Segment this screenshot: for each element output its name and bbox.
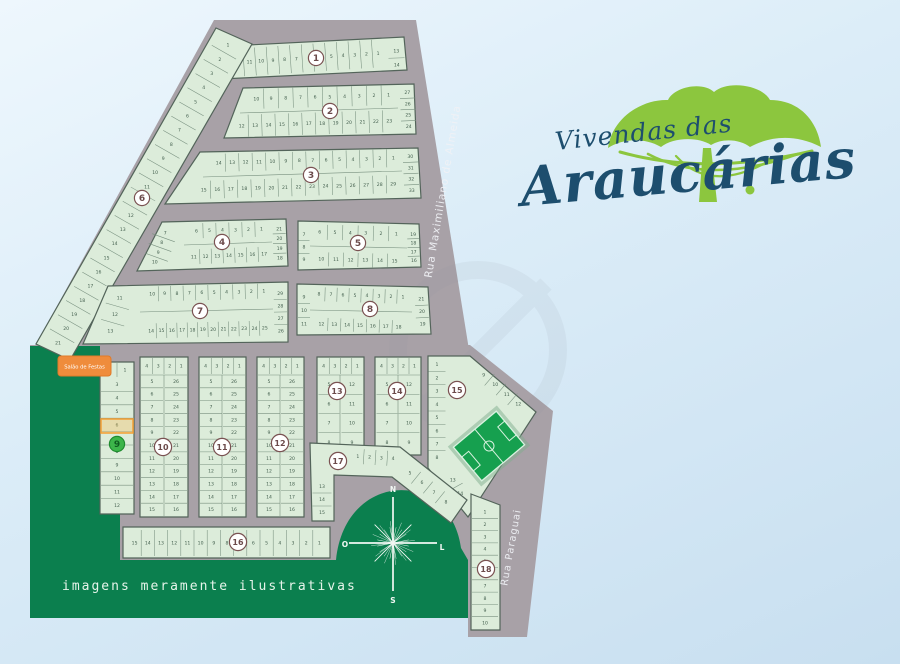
- lot-number: 11: [144, 184, 150, 190]
- block-4-number-badge: 4: [214, 234, 229, 249]
- lot-number: 7: [295, 56, 298, 62]
- block-11-badge-number: 11: [216, 443, 228, 452]
- lot-number: 10: [269, 159, 275, 165]
- compass-east-label: L: [440, 543, 445, 552]
- lot-number: 1: [226, 43, 229, 49]
- lot-number: 5: [213, 290, 216, 296]
- lot-number: 14: [226, 253, 232, 259]
- lot-number: 11: [149, 456, 155, 462]
- lot-number: 5: [194, 99, 197, 105]
- lot-number: 5: [338, 157, 341, 163]
- lot-number: 8: [151, 417, 154, 423]
- lot-number: 17: [289, 494, 295, 500]
- block-10: 4321567891011121314152625242322212019181…: [140, 357, 188, 517]
- lot-number: 13: [158, 541, 164, 547]
- lot-number: 9: [268, 430, 271, 436]
- lot-number: 3: [436, 389, 439, 395]
- lot-number: 2: [402, 364, 405, 370]
- lot-number: 9: [408, 440, 411, 446]
- lot-number: 4: [352, 157, 355, 163]
- lot-number: 19: [420, 321, 426, 327]
- lot-number: 21: [221, 327, 227, 333]
- lot-number: 7: [386, 421, 389, 427]
- lot-number: 20: [289, 456, 295, 462]
- lot-number: 10: [149, 291, 155, 297]
- lot-number: 21: [173, 443, 179, 449]
- lot-number: 16: [173, 507, 179, 513]
- lot-number: 1: [356, 454, 359, 460]
- block-12-number-badge: 12: [271, 434, 288, 451]
- lot-number: 29: [277, 291, 283, 297]
- lot-number: 5: [268, 379, 271, 385]
- block-16-number-badge: 16: [229, 533, 246, 550]
- lot-number: 25: [173, 392, 179, 398]
- lot-number: 5: [151, 379, 154, 385]
- block-13: 432156781211109: [317, 357, 364, 455]
- lot-number: 11: [184, 541, 190, 547]
- lot-number: 6: [151, 392, 154, 398]
- block-10-number-badge: 10: [154, 438, 171, 455]
- lot-number: 2: [380, 231, 383, 237]
- lot-number: 22: [296, 185, 302, 191]
- lot-number: 26: [278, 328, 284, 334]
- lot-number: 13: [331, 322, 337, 328]
- lot-number: 4: [225, 290, 228, 296]
- lot-number: 9: [163, 291, 166, 297]
- block-8-number-badge: 8: [362, 301, 377, 316]
- block-13-number-badge: 13: [328, 382, 345, 399]
- lot-number: 23: [241, 326, 247, 332]
- lot-number: 11: [191, 254, 197, 260]
- lot-number: 9: [482, 372, 485, 378]
- lot-number: 8: [226, 541, 229, 547]
- block-4-badge-number: 4: [219, 238, 225, 248]
- block-4: 654321789101112131415161721201918: [137, 219, 288, 271]
- lot-number: 9: [210, 430, 213, 436]
- lot-number: 16: [289, 507, 295, 513]
- lot-number: 1: [413, 364, 416, 370]
- lot-number: 27: [363, 183, 369, 189]
- lot-number: 2: [227, 364, 230, 370]
- block-6-badge-number: 6: [139, 194, 145, 204]
- lot-number: 12: [243, 160, 249, 166]
- lot-number: 17: [306, 121, 312, 127]
- lot-number: 14: [112, 241, 118, 247]
- lot-number: 16: [214, 187, 220, 193]
- lot-number: 24: [289, 405, 295, 411]
- lot-number: 9: [271, 58, 274, 64]
- lot-number: 7: [151, 405, 154, 411]
- block-16-badge-number: 16: [232, 538, 244, 547]
- lot-number: 3: [333, 364, 336, 370]
- lot-number: 9: [284, 159, 287, 165]
- lot-number: 6: [386, 401, 389, 407]
- lot-number: 24: [173, 405, 179, 411]
- lot-number: 14: [148, 328, 154, 334]
- lot-number: 6: [268, 392, 271, 398]
- block-11-number-badge: 11: [213, 438, 230, 455]
- lot-number: 11: [406, 401, 412, 407]
- lot-number: 16: [96, 270, 102, 276]
- lot-number: 4: [278, 541, 281, 547]
- lot-number: 17: [411, 249, 417, 255]
- lot-number: 5: [330, 54, 333, 60]
- lot-number: 18: [241, 186, 247, 192]
- lot-number: 27: [404, 90, 410, 96]
- lot-number: 7: [178, 128, 181, 134]
- lot-number: 16: [411, 258, 417, 264]
- lot-number: 16: [231, 507, 237, 513]
- lot-number: 18: [319, 121, 325, 127]
- lot-number: 3: [157, 364, 160, 370]
- lot-number: 14: [145, 541, 151, 547]
- lot-number: 5: [436, 415, 439, 421]
- lot-number: 2: [285, 364, 288, 370]
- lot-number: 24: [406, 124, 412, 130]
- lot-number: 12: [128, 213, 134, 219]
- lot-number: 1: [402, 294, 405, 300]
- lot-number: 9: [157, 250, 160, 256]
- block-2-number-badge: 2: [322, 103, 337, 118]
- lot-number: 2: [250, 289, 253, 295]
- lot-number: 17: [228, 187, 234, 193]
- lot-number: 19: [333, 120, 339, 126]
- lot-number: 7: [484, 583, 487, 589]
- block-3-outline: [165, 148, 421, 204]
- lot-number: 19: [289, 469, 295, 475]
- lot-number: 1: [484, 510, 487, 516]
- lot-number: 8: [176, 291, 179, 297]
- lot-number: 20: [173, 456, 179, 462]
- lot-number: 3: [391, 364, 394, 370]
- lot-number: 24: [323, 184, 329, 190]
- lot-number: 11: [266, 456, 272, 462]
- lot-number: 19: [255, 186, 261, 192]
- lot-number: 8: [445, 500, 448, 506]
- lot-number: 22: [289, 430, 295, 436]
- lot-number: 4: [366, 293, 369, 299]
- lot-number: 8: [284, 96, 287, 102]
- lot-number: 3: [353, 52, 356, 58]
- lot-number: 13: [319, 484, 325, 490]
- lot-number: 2: [436, 375, 439, 381]
- lot-number: 26: [350, 183, 356, 189]
- lot-number: 12: [406, 382, 412, 388]
- amenity-label-text: Salão de Festas: [64, 365, 105, 371]
- lot-number: 15: [238, 253, 244, 259]
- lot-number: 4: [221, 228, 224, 234]
- lot-number: 9: [162, 156, 165, 162]
- lot-number: 13: [393, 49, 399, 55]
- lot-number: 18: [289, 481, 295, 487]
- lot-number: 4: [204, 364, 207, 370]
- lot-number: 26: [405, 101, 411, 107]
- lot-number: 28: [277, 303, 283, 309]
- lot-number: 25: [405, 113, 411, 119]
- lot-number: 13: [266, 481, 272, 487]
- lot-number: 28: [377, 182, 383, 188]
- lot-number: 18: [396, 324, 402, 330]
- lot-number: 2: [390, 294, 393, 300]
- lot-number: 19: [410, 232, 416, 238]
- lot-number: 12: [114, 503, 120, 509]
- lot-number: 25: [289, 392, 295, 398]
- site-plan-image: 1211109876543211314109876543211213141516…: [0, 0, 900, 664]
- lot-number: 3: [116, 382, 119, 388]
- lot-number: 4: [484, 547, 487, 553]
- lot-number: 10: [198, 541, 204, 547]
- lot-number: 10: [114, 476, 120, 482]
- lot-number: 19: [71, 312, 77, 318]
- lot-number: 17: [231, 494, 237, 500]
- compass-west-label: O: [342, 540, 348, 549]
- lot-number: 11: [333, 257, 339, 263]
- lot-number: 3: [365, 156, 368, 162]
- lot-number: 25: [336, 183, 342, 189]
- lot-number: 1: [262, 289, 265, 295]
- lot-number: 26: [173, 379, 179, 385]
- lot-number: 3: [210, 71, 213, 77]
- lot-number: 17: [87, 284, 93, 290]
- lot-number: 23: [173, 417, 179, 423]
- lot-number: 24: [252, 326, 258, 332]
- lot-number: 9: [303, 294, 306, 300]
- lot-number: 8: [298, 158, 301, 164]
- lot-number: 6: [200, 290, 203, 296]
- lot-number: 20: [419, 309, 425, 315]
- lot-number: 18: [410, 241, 416, 247]
- lot-number: 4: [392, 456, 395, 462]
- lot-number: 21: [55, 340, 61, 346]
- compass-north-label: N: [390, 485, 396, 494]
- lot-number: 10: [152, 170, 158, 176]
- lot-number: 25: [231, 392, 237, 398]
- lot-number: 4: [436, 402, 439, 408]
- lot-number: 10: [318, 257, 324, 263]
- block-18-number-badge: 18: [477, 560, 494, 577]
- lot-number: 22: [231, 326, 237, 332]
- lot-number: 7: [328, 421, 331, 427]
- lot-number: 13: [229, 160, 235, 166]
- lot-number: 20: [346, 120, 352, 126]
- lot-number: 1: [395, 231, 398, 237]
- block-1-number-badge: 1: [308, 50, 323, 65]
- lot-number: 12: [171, 541, 177, 547]
- lot-number: 1: [318, 541, 321, 547]
- lot-number: 14: [344, 323, 350, 329]
- lot-number: 7: [303, 232, 306, 238]
- lot-number: 22: [373, 119, 379, 125]
- lot-number: 8: [436, 455, 439, 461]
- block-9-number-badge: 9: [109, 436, 124, 451]
- lot-number: 4: [349, 230, 352, 236]
- lot-number: 19: [200, 327, 206, 333]
- lot-number: 9: [212, 541, 215, 547]
- lot-number: 17: [383, 324, 389, 330]
- lot-number: 6: [195, 228, 198, 234]
- lot-number: 1: [180, 364, 183, 370]
- lot-number: 3: [215, 364, 218, 370]
- amenity-label: Salão de Festas: [58, 356, 111, 376]
- lot-number: 10: [152, 260, 158, 266]
- lot-number: 1: [296, 364, 299, 370]
- lot-number: 13: [120, 227, 126, 233]
- lot-number: 12: [266, 469, 272, 475]
- lot-number: 6: [210, 392, 213, 398]
- lot-number: 13: [252, 123, 258, 129]
- block-17-number-badge: 17: [329, 452, 346, 469]
- lot-number: 6: [186, 114, 189, 120]
- block-2-badge-number: 2: [327, 107, 333, 117]
- block-17-badge-number: 17: [332, 457, 343, 466]
- lot-number: 4: [342, 53, 345, 59]
- lot-number: 2: [378, 156, 381, 162]
- lot-number: 7: [330, 292, 333, 298]
- lot-number: 15: [104, 255, 110, 261]
- lot-number: 10: [482, 620, 488, 626]
- block-1-badge-number: 1: [313, 54, 319, 64]
- lot-number: 12: [112, 312, 118, 318]
- lot-number: 5: [208, 228, 211, 234]
- lot-number: 20: [210, 327, 216, 333]
- lot-number: 15: [357, 323, 363, 329]
- lot-number: 2: [372, 93, 375, 99]
- lot-number: 8: [268, 417, 271, 423]
- lot-number: 11: [208, 456, 214, 462]
- lot-number: 21: [231, 443, 237, 449]
- lot-number: 7: [188, 290, 191, 296]
- lot-number: 6: [318, 230, 321, 236]
- block-7-number-badge: 7: [192, 303, 207, 318]
- lot-number: 14: [319, 497, 325, 503]
- lot-number: 13: [107, 328, 113, 334]
- block-3: 1413121110987654321151617181920212223242…: [165, 148, 421, 204]
- lot-number: 22: [231, 430, 237, 436]
- lot-number: 15: [208, 507, 214, 513]
- lot-number: 1: [387, 93, 390, 99]
- block-3-badge-number: 3: [308, 171, 314, 181]
- lot-number: 16: [169, 328, 175, 334]
- lot-number: 25: [262, 326, 268, 332]
- lot-number: 12: [318, 322, 324, 328]
- lot-number: 1: [124, 368, 127, 374]
- lot-number: 23: [231, 417, 237, 423]
- block-18-badge-number: 18: [480, 565, 492, 574]
- lot-number: 19: [277, 246, 283, 252]
- lot-number: 10: [301, 308, 307, 314]
- lot-number: 27: [278, 316, 284, 322]
- block-2: 1098765432112131415161718192021222327262…: [224, 84, 416, 138]
- lot-number: 5: [409, 470, 412, 476]
- lot-number: 8: [170, 142, 173, 148]
- lot-number: 21: [418, 297, 424, 303]
- lot-number: 21: [360, 120, 366, 126]
- lot-number: 15: [266, 507, 272, 513]
- lot-number: 15: [201, 187, 207, 193]
- lot-number: 18: [231, 481, 237, 487]
- lot-number: 10: [258, 59, 264, 65]
- lot-number: 6: [436, 428, 439, 434]
- lot-number: 11: [117, 296, 123, 302]
- block-3-number-badge: 3: [303, 167, 318, 182]
- lot-number: 9: [270, 96, 273, 102]
- lot-number: 7: [210, 405, 213, 411]
- lot-number: 15: [132, 541, 138, 547]
- highlighted-lot: [101, 419, 133, 433]
- lot-number: 12: [348, 257, 354, 263]
- lot-number: 21: [276, 226, 282, 232]
- lot-number: 2: [247, 227, 250, 233]
- lot-number: 3: [273, 364, 276, 370]
- block-13-badge-number: 13: [331, 387, 342, 396]
- lot-number: 1: [436, 362, 439, 368]
- lot-number: 15: [392, 258, 398, 264]
- lot-number: 19: [173, 469, 179, 475]
- lot-number: 13: [149, 481, 155, 487]
- lot-number: 16: [292, 122, 298, 128]
- block-7: 1098765432111121314151617181920212223242…: [83, 282, 288, 344]
- block-5-badge-number: 5: [355, 239, 361, 249]
- lot-number: 1: [377, 51, 380, 57]
- site-plan-svg: 1211109876543211314109876543211213141516…: [0, 0, 900, 664]
- lot-number: 13: [450, 477, 456, 483]
- lot-number: 13: [208, 481, 214, 487]
- lot-number: 18: [173, 481, 179, 487]
- lot-number: 2: [484, 522, 487, 528]
- lot-number: 3: [234, 227, 237, 233]
- lot-number: 4: [322, 364, 325, 370]
- lot-number: 14: [266, 494, 272, 500]
- lot-number: 3: [484, 534, 487, 540]
- lot-number: 4: [116, 396, 119, 402]
- lot-number: 24: [231, 405, 237, 411]
- lot-number: 5: [210, 379, 213, 385]
- lot-number: 8: [386, 440, 389, 446]
- lot-number: 2: [368, 455, 371, 461]
- lot-number: 6: [421, 480, 424, 486]
- lot-number: 8: [283, 57, 286, 63]
- lot-number: 7: [433, 490, 436, 496]
- lot-number: 12: [239, 123, 245, 129]
- lot-number: 23: [309, 184, 315, 190]
- lot-number: 20: [269, 185, 275, 191]
- block-15-badge-number: 15: [451, 386, 463, 395]
- block-14-number-badge: 14: [388, 382, 405, 399]
- lot-number: 3: [380, 455, 383, 461]
- lot-number: 4: [202, 85, 205, 91]
- block-11: 4321567891011121314152625242322212019181…: [199, 357, 246, 517]
- lot-number: 2: [168, 364, 171, 370]
- lot-number: 6: [328, 401, 331, 407]
- lot-number: 33: [409, 188, 415, 194]
- lot-number: 4: [343, 94, 346, 100]
- lot-number: 8: [484, 596, 487, 602]
- lot-number: 2: [218, 57, 221, 63]
- lot-number: 14: [266, 122, 272, 128]
- lot-number: 11: [114, 489, 120, 495]
- block-14: 432156781211109: [375, 357, 421, 455]
- lot-number: 10: [492, 382, 498, 388]
- lot-number: 7: [311, 158, 314, 164]
- lot-number: 8: [318, 292, 321, 298]
- block-15-number-badge: 15: [448, 381, 465, 398]
- lot-number: 32: [408, 177, 414, 183]
- lot-number: 20: [276, 236, 282, 242]
- lot-number: 6: [325, 157, 328, 163]
- lot-number: 16: [370, 323, 376, 329]
- lot-number: 26: [289, 379, 295, 385]
- block-14-badge-number: 14: [391, 387, 403, 396]
